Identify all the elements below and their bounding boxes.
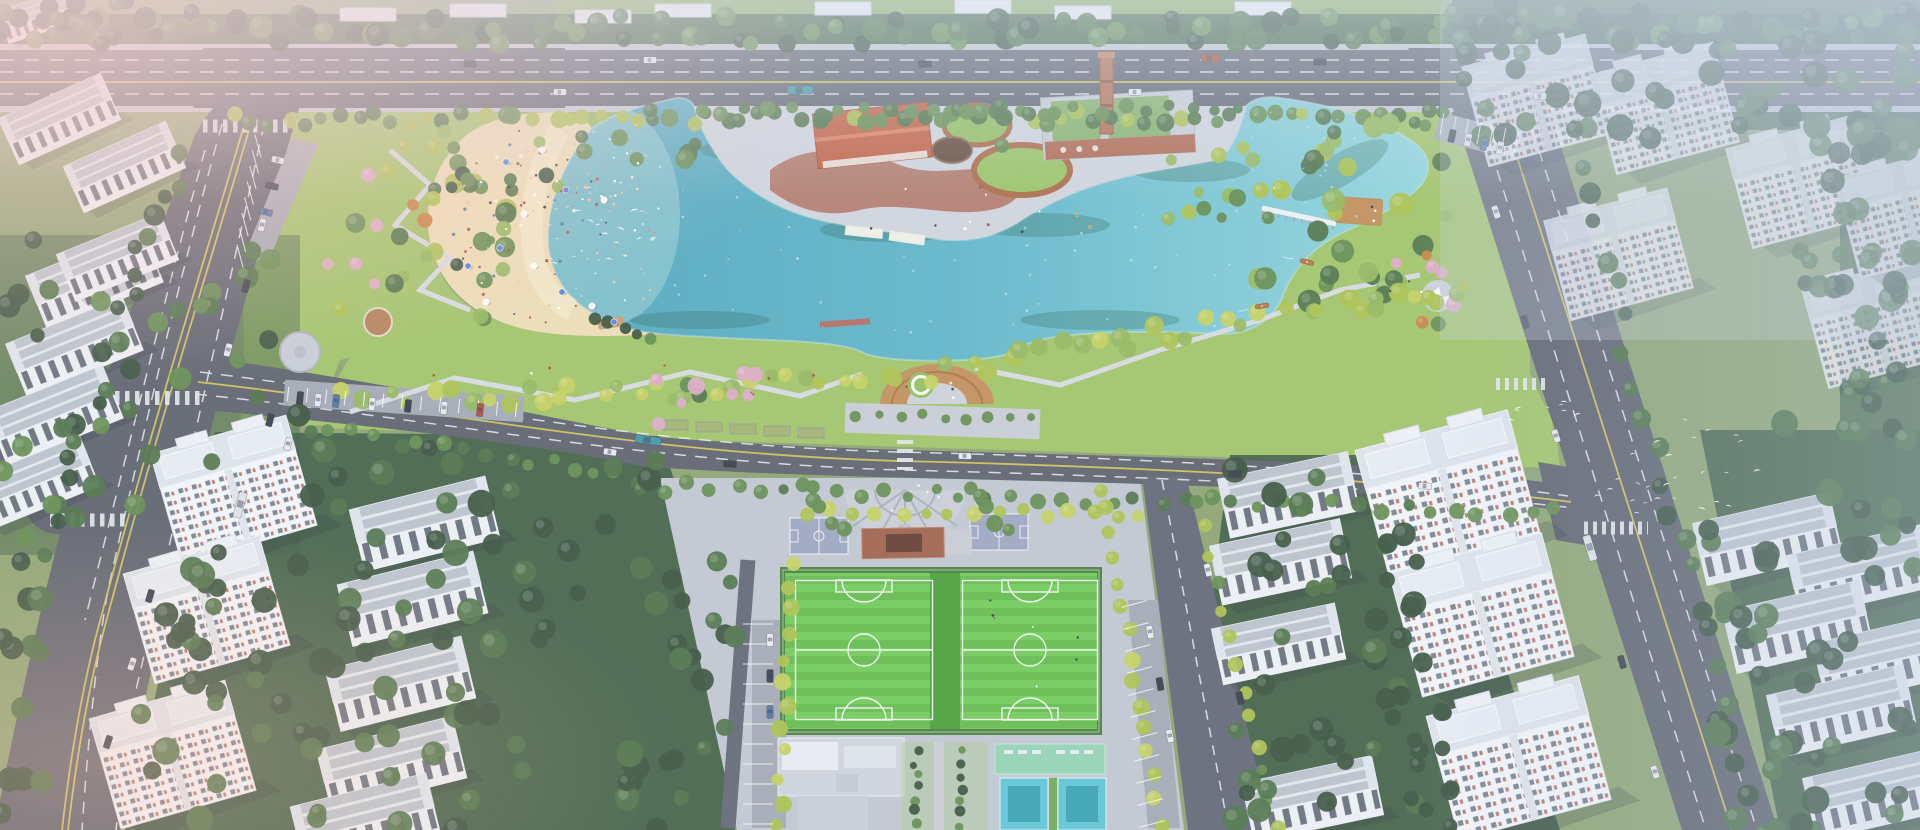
tree-highlight	[1274, 183, 1281, 190]
tree	[1102, 526, 1115, 539]
tree-highlight	[134, 707, 142, 715]
person-dot	[471, 176, 473, 178]
tree-highlight	[27, 234, 34, 241]
tree	[828, 19, 843, 34]
tree-highlight	[127, 497, 136, 506]
tree-highlight	[369, 26, 379, 36]
tree-highlight	[1809, 643, 1820, 654]
person-dot	[494, 199, 497, 202]
water-sparkle	[910, 331, 913, 334]
tree	[1900, 719, 1917, 736]
tree	[1851, 500, 1870, 519]
tree	[910, 762, 917, 769]
tree	[417, 213, 432, 228]
tree	[1337, 753, 1354, 770]
tree	[1338, 158, 1357, 177]
tree	[1685, 557, 1700, 572]
person-dot	[951, 388, 954, 391]
tree	[1282, 8, 1300, 26]
tree-highlight	[1013, 343, 1021, 351]
tree-highlight	[645, 105, 651, 111]
tree	[533, 36, 548, 51]
tree	[1296, 108, 1308, 120]
tree	[955, 806, 966, 817]
person-dot	[1389, 290, 1391, 292]
person-dot	[588, 198, 591, 201]
person-dot	[605, 222, 607, 224]
tree	[460, 172, 475, 187]
tree	[519, 587, 545, 613]
tree-highlight	[1163, 334, 1171, 342]
tree-highlight	[1850, 422, 1859, 431]
person-dot	[645, 212, 647, 214]
tree-highlight	[1207, 492, 1214, 499]
tree-highlight	[1325, 192, 1335, 202]
tree-highlight	[1310, 471, 1317, 478]
vehicle-car_white	[644, 57, 657, 64]
tree	[1217, 213, 1227, 223]
tree	[605, 457, 623, 475]
person-dot	[1371, 206, 1374, 209]
tree	[1735, 97, 1753, 115]
vehicle-glass	[643, 436, 651, 443]
tree-highlight	[130, 242, 136, 248]
vehicle-glass	[1423, 484, 1427, 489]
person-dot	[952, 396, 955, 399]
person-dot	[637, 162, 640, 165]
tree	[1126, 492, 1139, 505]
person-dot	[637, 187, 639, 189]
tree-highlight	[351, 259, 357, 265]
tree	[534, 136, 546, 148]
tree	[1671, 30, 1695, 54]
tree	[314, 22, 334, 42]
tree-highlight	[1113, 331, 1121, 339]
vehicle-glass	[768, 638, 773, 642]
tree-highlight	[429, 141, 435, 147]
tree	[205, 598, 222, 615]
tree	[25, 231, 43, 249]
person-dot	[523, 201, 526, 204]
tree	[957, 774, 965, 782]
tree	[1362, 638, 1387, 663]
person-dot	[610, 195, 613, 198]
tree	[171, 144, 188, 161]
tree-highlight	[1230, 725, 1237, 732]
tree	[1342, 290, 1361, 309]
tree	[496, 221, 511, 236]
tree	[1309, 304, 1323, 318]
tree	[1165, 10, 1180, 25]
tree	[830, 484, 844, 498]
tree	[269, 32, 289, 52]
person-dot	[520, 165, 522, 167]
tree	[914, 770, 922, 778]
tree-highlight	[1881, 376, 1888, 383]
person-dot	[1075, 658, 1077, 660]
tree	[771, 720, 788, 737]
tree	[1408, 290, 1422, 304]
tree	[504, 173, 517, 186]
tree	[850, 411, 861, 422]
tree	[941, 414, 950, 423]
tree-highlight	[1445, 821, 1451, 827]
tree-highlight	[535, 38, 541, 44]
person-dot	[548, 304, 551, 307]
water-sparkle	[1251, 136, 1253, 138]
tree	[17, 528, 35, 546]
tree-highlight	[428, 193, 434, 199]
tree	[839, 375, 851, 387]
water-sparkle	[1263, 220, 1264, 221]
tree	[1233, 103, 1243, 113]
tree	[1883, 116, 1906, 139]
tree-highlight	[841, 377, 846, 382]
tree	[587, 13, 608, 34]
tree	[804, 24, 820, 40]
person-dot	[576, 187, 578, 189]
tree	[252, 723, 272, 743]
tree	[1253, 182, 1269, 198]
umbrella-canopy	[563, 187, 569, 193]
tree	[775, 796, 792, 813]
tree	[1237, 141, 1250, 154]
water-sparkle	[1106, 318, 1108, 320]
tree-highlight	[951, 23, 960, 32]
water-sparkle	[1044, 259, 1046, 261]
person-dot	[595, 273, 597, 275]
tree	[568, 463, 583, 478]
tree-highlight	[96, 38, 103, 45]
tree	[1654, 88, 1675, 109]
person-dot	[519, 154, 522, 157]
tree	[1881, 497, 1903, 519]
tree	[754, 485, 768, 499]
tree	[1319, 142, 1335, 158]
tree	[525, 112, 539, 126]
tree-highlight	[1323, 10, 1331, 18]
tree-highlight	[1852, 371, 1860, 379]
tree	[743, 36, 758, 51]
tree-highlight	[251, 653, 262, 664]
tree-highlight	[107, 31, 114, 38]
water-sparkle	[644, 272, 645, 273]
person-dot	[554, 273, 556, 275]
water-sparkle	[592, 130, 594, 132]
tree	[1274, 628, 1291, 645]
tree	[1854, 305, 1879, 330]
tree	[1886, 361, 1908, 383]
tree	[1369, 291, 1384, 306]
tree	[1209, 105, 1219, 115]
tree-highlight	[1113, 580, 1119, 586]
person-dot	[989, 599, 991, 601]
umbrella-canopy	[559, 289, 565, 295]
water-sparkle	[575, 288, 577, 290]
tree	[333, 107, 349, 123]
tree-highlight	[939, 358, 946, 365]
tree	[120, 359, 141, 380]
tree	[941, 509, 953, 521]
tree	[1267, 105, 1283, 121]
person-dot	[493, 214, 496, 217]
tree	[1156, 114, 1174, 132]
vehicle-car_white	[958, 453, 971, 460]
tree	[1178, 332, 1192, 346]
tree	[300, 483, 324, 507]
water-sparkle	[822, 326, 823, 327]
water-sparkle	[1026, 309, 1029, 312]
tree-highlight	[207, 600, 214, 607]
person-dot	[566, 231, 569, 234]
tree	[483, 534, 504, 555]
tree	[454, 700, 480, 726]
tree-highlight	[1392, 285, 1400, 293]
tree	[1254, 674, 1275, 695]
tree-highlight	[51, 13, 58, 20]
water-sparkle	[929, 320, 931, 322]
person-dot	[979, 186, 982, 189]
tree	[713, 107, 728, 122]
person-dot	[557, 307, 560, 310]
tree	[21, 635, 44, 658]
water-sparkle	[1130, 259, 1133, 262]
umbrella-canopy	[611, 319, 617, 325]
tree-highlight	[1241, 772, 1251, 782]
tree-highlight	[733, 115, 739, 121]
tree-highlight	[681, 477, 687, 483]
tree	[576, 143, 592, 159]
tree	[1550, 2, 1577, 29]
tree-highlight	[1854, 502, 1862, 510]
person-dot	[631, 150, 633, 152]
tree	[383, 115, 397, 129]
person-dot	[614, 180, 617, 183]
tree	[958, 746, 965, 753]
tree-highlight	[1845, 387, 1853, 395]
vehicle-car_dark	[1228, 470, 1241, 477]
tree	[1196, 201, 1211, 216]
person-dot	[1077, 636, 1080, 639]
person-dot	[1036, 685, 1038, 687]
tree-highlight	[1577, 162, 1584, 169]
tree-highlight	[1642, 130, 1651, 139]
tree	[533, 18, 552, 37]
tree	[1431, 316, 1446, 331]
field-gap	[930, 573, 960, 729]
water-sparkle	[1232, 180, 1233, 181]
tree	[91, 291, 111, 311]
tree	[436, 492, 457, 513]
tree	[442, 380, 460, 398]
water-sparkle	[1134, 226, 1137, 229]
person-dot	[507, 186, 510, 189]
tree-highlight	[1226, 810, 1237, 821]
tree	[131, 704, 151, 724]
vehicle-glass	[728, 462, 732, 467]
tree-highlight	[522, 591, 533, 602]
tree	[305, 425, 318, 438]
person-dot	[649, 289, 652, 292]
tree	[1202, 551, 1213, 562]
tree	[595, 514, 616, 535]
vehicle-glass	[1207, 55, 1212, 61]
tree	[203, 453, 220, 470]
tree-highlight	[1277, 534, 1284, 541]
tree-highlight	[1459, 45, 1469, 55]
vehicle-glass	[1318, 60, 1322, 65]
tree	[168, 302, 185, 319]
tree-highlight	[1276, 631, 1283, 638]
vehicle-glass	[298, 395, 303, 399]
umbrella-canopy	[521, 211, 527, 217]
tree	[652, 417, 666, 431]
tree	[664, 749, 684, 769]
person-dot	[576, 192, 578, 194]
tree	[1618, 307, 1632, 321]
tree-highlight	[0, 297, 10, 307]
vehicle-bus_teal	[787, 86, 813, 94]
vehicle-car_white	[1534, 93, 1547, 100]
tree-highlight	[68, 436, 75, 443]
tree	[1325, 494, 1339, 508]
vehicle-car_white	[1129, 89, 1142, 96]
tree-highlight	[335, 303, 341, 309]
tree	[479, 108, 495, 124]
tree	[1704, 719, 1732, 747]
tree	[425, 9, 445, 29]
tree	[250, 390, 266, 406]
tree	[502, 482, 520, 500]
tree-highlight	[363, 170, 369, 176]
tree	[994, 98, 1008, 112]
tree-highlight	[1387, 273, 1395, 281]
tree	[1289, 492, 1314, 517]
water-sparkle	[1154, 266, 1157, 269]
vehicle-car_white	[440, 401, 448, 415]
tree	[1305, 580, 1322, 597]
water-sparkle	[674, 284, 677, 287]
vehicle-car_white	[1418, 482, 1431, 489]
tree	[897, 508, 912, 523]
water-sparkle	[682, 190, 683, 191]
tree	[697, 741, 712, 756]
tree	[616, 31, 632, 47]
tree-highlight	[1424, 105, 1430, 111]
tree-highlight	[715, 109, 721, 115]
tree	[549, 454, 560, 465]
person-dot	[517, 280, 519, 282]
person-dot	[613, 281, 616, 284]
tree	[1018, 17, 1040, 39]
tree	[1883, 271, 1907, 295]
tree	[1323, 33, 1339, 49]
tree	[496, 262, 511, 277]
tree	[610, 380, 623, 393]
tree-highlight	[1805, 33, 1816, 44]
tennis-zone	[995, 744, 1106, 830]
vehicle-glass	[558, 90, 562, 95]
tree	[857, 114, 874, 131]
tree-highlight	[971, 357, 976, 362]
tree	[369, 278, 380, 289]
tree	[1864, 565, 1885, 586]
tree-highlight	[1862, 252, 1870, 260]
vehicle-glass	[406, 403, 411, 407]
tree	[783, 599, 800, 616]
tree-highlight	[1687, 559, 1693, 565]
person-dot	[530, 177, 532, 179]
tree	[373, 676, 397, 700]
tree	[154, 602, 178, 626]
water-sparkle	[1273, 187, 1276, 190]
tree-highlight	[1897, 44, 1906, 53]
person-dot	[495, 156, 498, 159]
tree-highlight	[684, 29, 692, 37]
tree-highlight	[1135, 701, 1142, 708]
tree	[241, 115, 257, 131]
tree-highlight	[316, 24, 324, 32]
tree	[643, 103, 657, 117]
tree	[1480, 16, 1501, 37]
tree-highlight	[1254, 742, 1260, 748]
person-dot	[566, 159, 568, 161]
tree	[914, 746, 923, 755]
tree-highlight	[492, 37, 500, 45]
tree	[1754, 549, 1778, 573]
person-dot	[560, 222, 563, 225]
tree	[1802, 62, 1828, 88]
tree	[772, 774, 784, 786]
tree	[669, 647, 692, 670]
tree	[1400, 596, 1422, 618]
person-dot	[463, 185, 465, 187]
person-dot	[475, 162, 477, 164]
tree	[1192, 17, 1212, 37]
tree-highlight	[1740, 788, 1749, 797]
tree	[322, 258, 333, 269]
tree	[724, 626, 746, 648]
tree	[287, 554, 309, 576]
person-dot	[520, 204, 523, 207]
tree	[781, 581, 796, 596]
tree	[1850, 118, 1876, 144]
tree	[298, 118, 312, 132]
tree-highlight	[1803, 11, 1812, 20]
vehicle-glass	[1233, 472, 1237, 477]
tree-highlight	[1313, 721, 1323, 731]
tree	[1324, 735, 1345, 756]
tree	[979, 499, 994, 514]
tree-highlight	[1423, 292, 1430, 299]
tree-highlight	[1897, 431, 1906, 440]
tree-highlight	[996, 100, 1002, 106]
tree	[1107, 22, 1125, 40]
tree	[1137, 117, 1151, 131]
tree-highlight	[561, 379, 568, 386]
tree	[61, 469, 78, 486]
tree-highlight	[1393, 630, 1402, 639]
vehicle-car_dark	[296, 391, 304, 405]
person-dot	[489, 201, 492, 204]
water-sparkle	[953, 259, 955, 261]
tree-highlight	[1554, 5, 1565, 16]
tree	[689, 138, 702, 151]
tree	[1767, 735, 1793, 761]
tree	[321, 424, 334, 437]
tree	[1252, 740, 1267, 755]
tree	[193, 298, 209, 314]
